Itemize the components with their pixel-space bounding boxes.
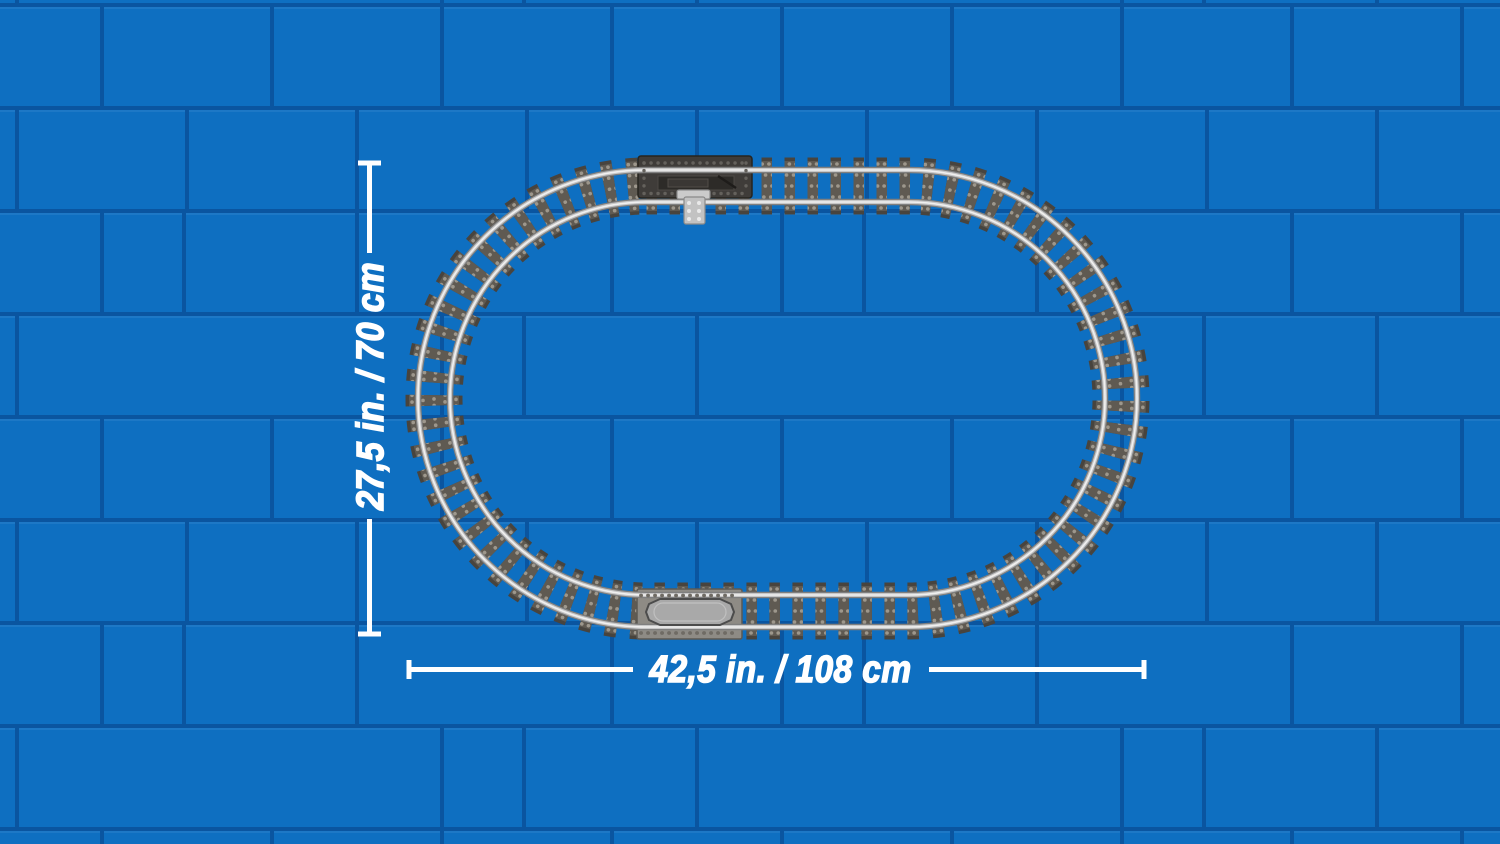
lego-track-dimension-diagram: 27,5 in. / 70 cm 42,5 in. / 108 cm <box>0 0 1500 844</box>
width-dimension-label: 42,5 in. / 108 cm <box>649 649 912 691</box>
track-diagram-canvas: 27,5 in. / 70 cm 42,5 in. / 108 cm <box>0 0 1500 844</box>
height-dimension-label: 27,5 in. / 70 cm <box>350 262 392 511</box>
brick-wall-background <box>0 0 1500 844</box>
